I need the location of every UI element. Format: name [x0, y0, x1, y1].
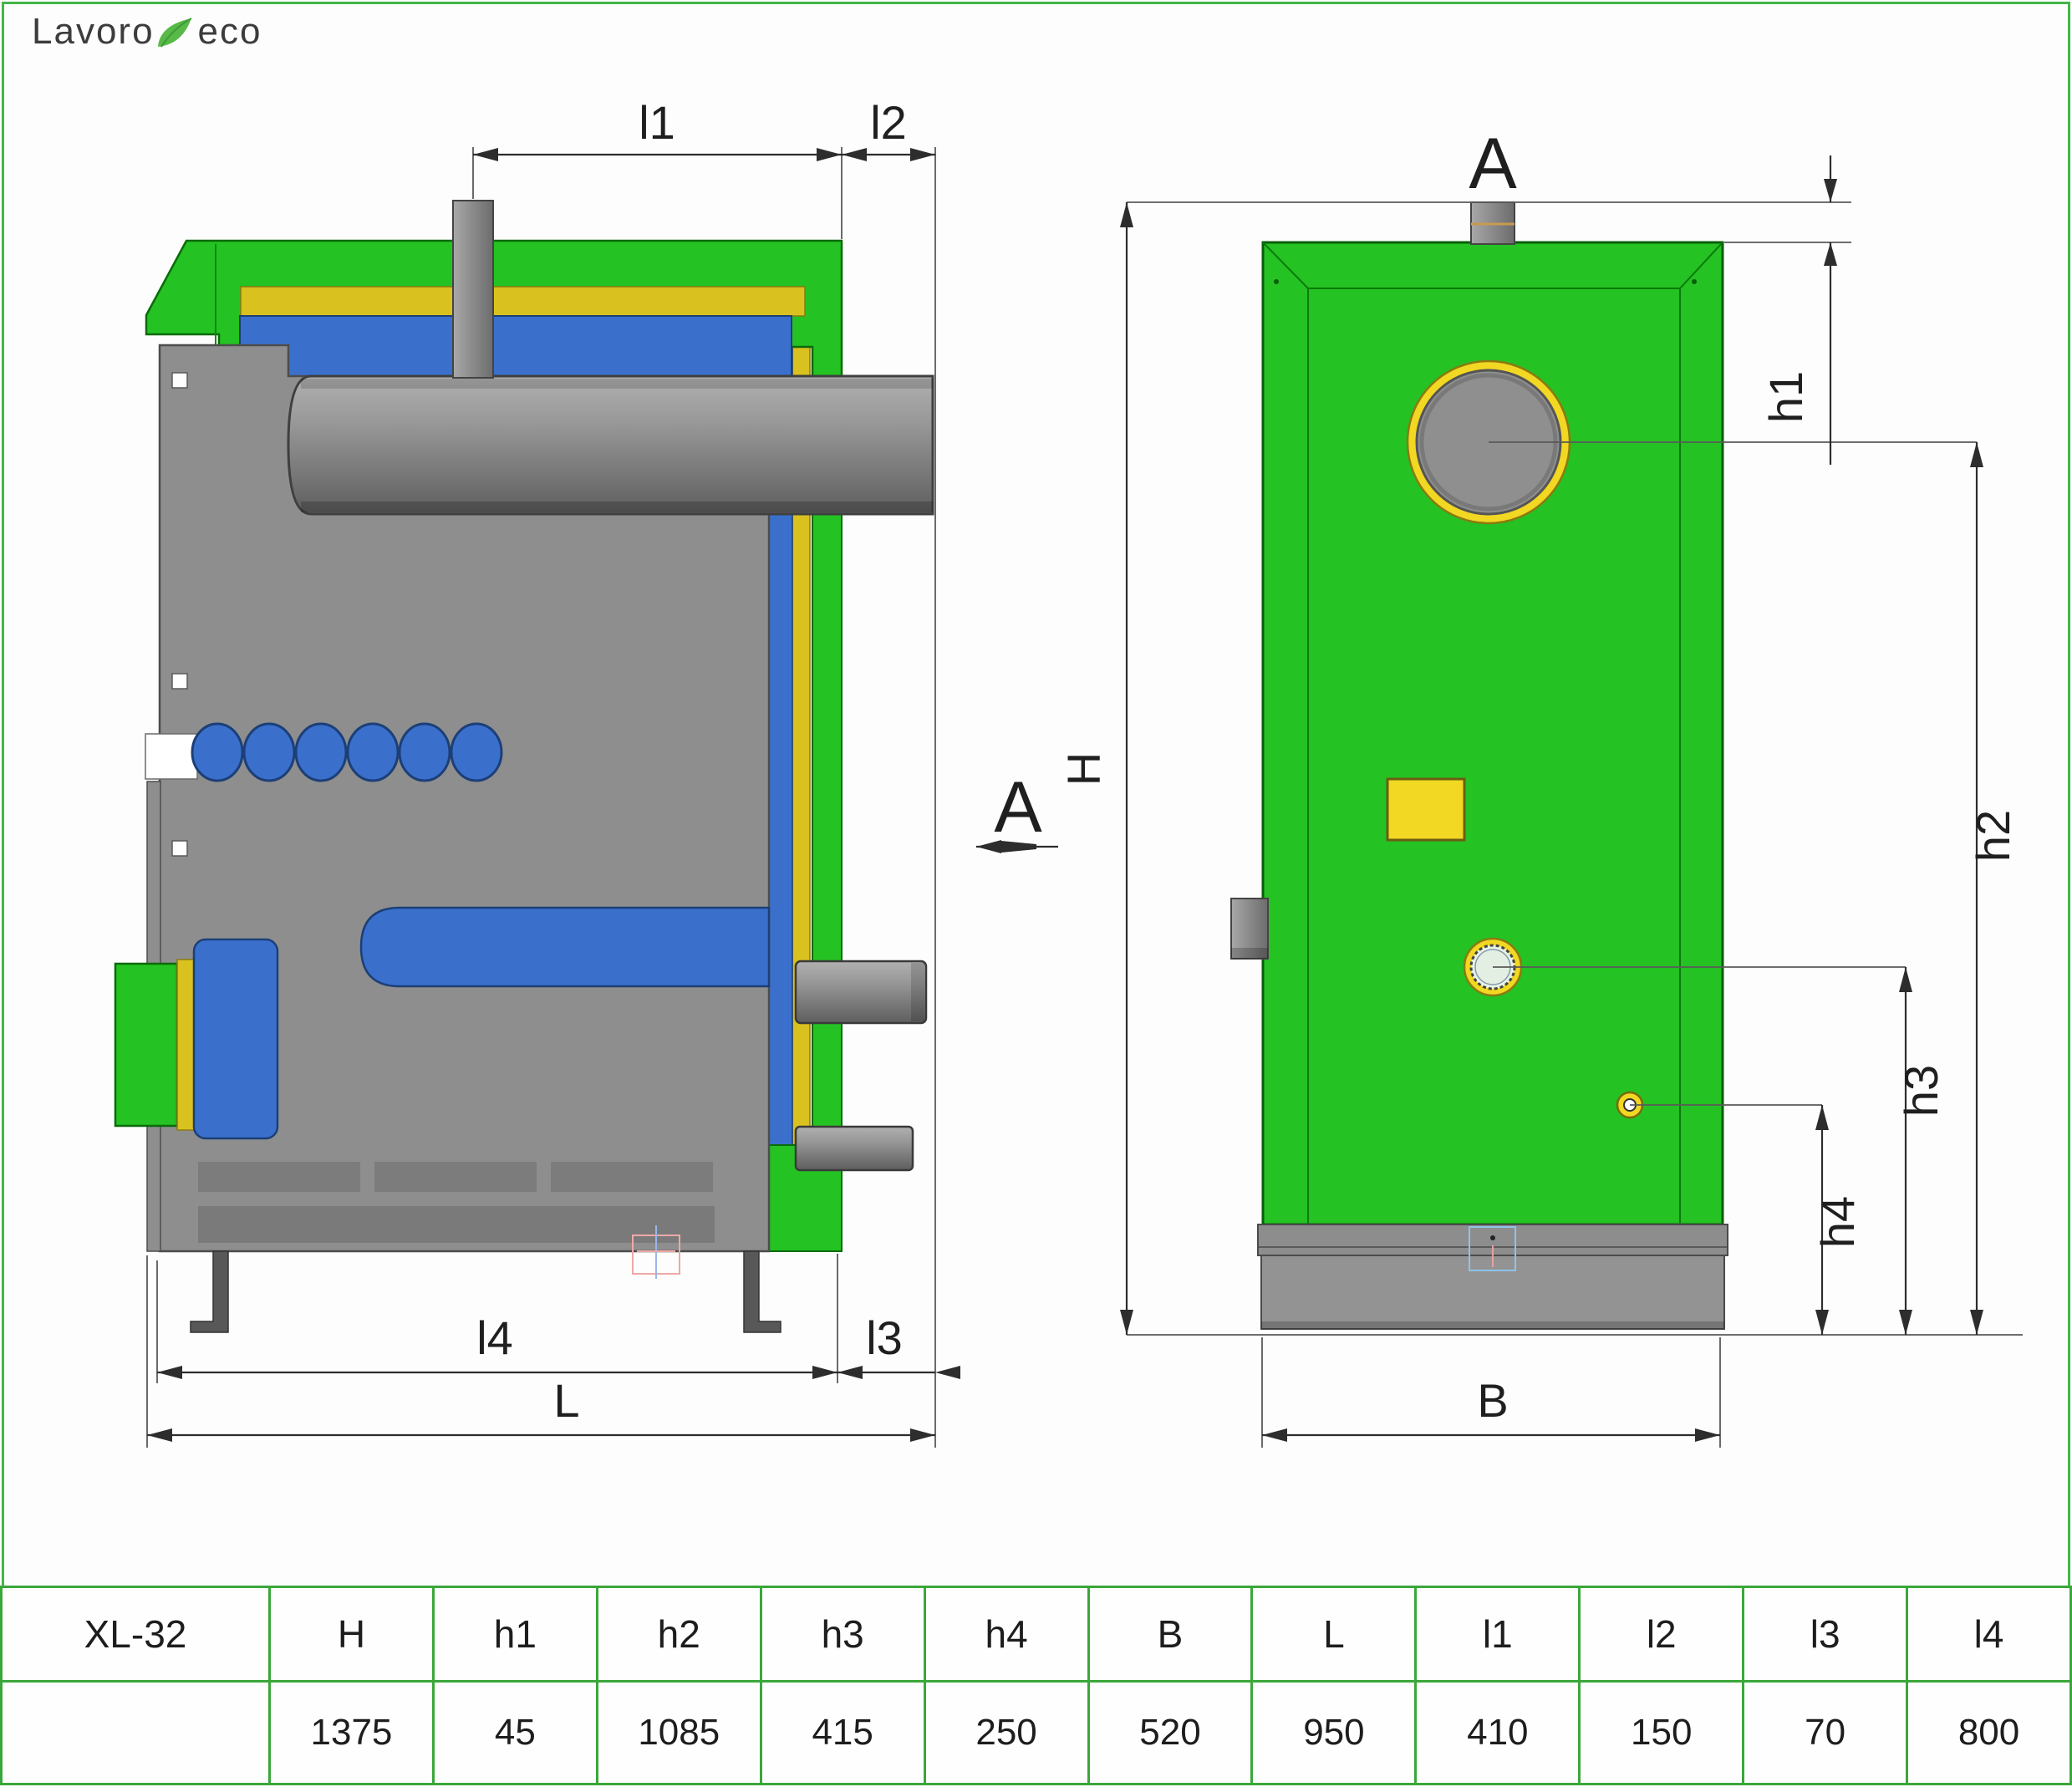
table-value-l4: 800: [1906, 1683, 2069, 1783]
dim-label-B: B: [1477, 1374, 1508, 1427]
stub-shade: [1231, 948, 1268, 959]
dim-label-H: H: [1057, 752, 1110, 786]
dim-label-h1: h1: [1759, 371, 1812, 423]
chimney-stub-side: [453, 201, 493, 378]
table-header-h2: h2: [596, 1588, 760, 1683]
spec-table: XL-32 H h1 h2 h3 h4 B L l1 l2 l3 l4 1375…: [0, 1586, 2072, 1785]
table-value-h2: 1085: [596, 1683, 760, 1783]
table-value-model: [3, 1683, 268, 1783]
grate-bar: [198, 1162, 360, 1192]
dim-label-L: L: [553, 1374, 579, 1427]
ash-tray: [198, 1206, 715, 1243]
grate-bar: [374, 1162, 537, 1192]
table-value-l3: 70: [1742, 1683, 1906, 1783]
front-plate-notch: [145, 734, 197, 779]
dim-label-h4: h4: [1811, 1196, 1864, 1248]
table-header-l2: l2: [1578, 1588, 1742, 1683]
dim-label-l3: l3: [866, 1311, 903, 1364]
table-header-l1: l1: [1414, 1588, 1578, 1683]
mount-hole: [172, 674, 187, 689]
weld-dot: [1274, 279, 1279, 284]
table-value-B: 520: [1087, 1683, 1251, 1783]
flue-cylinder-shade: [301, 501, 933, 512]
front-view-drawing: A H h1 h2 h3 h4 B: [1057, 124, 2023, 1448]
table-value-h1: 45: [432, 1683, 596, 1783]
dim-label-l2: l2: [870, 96, 907, 149]
water-outlet-pipe: [796, 961, 926, 1023]
technical-drawing: l1 l2 l4 l3 L A: [0, 0, 2072, 1787]
table-header-L: L: [1250, 1588, 1414, 1683]
table-header-l4: l4: [1906, 1588, 2069, 1683]
table-value-h3: 415: [760, 1683, 924, 1783]
water-baffle-tongue: [361, 908, 769, 986]
table-header-h3: h3: [760, 1588, 924, 1683]
weld-dot: [1692, 279, 1697, 284]
insulation-top-band: [241, 287, 805, 316]
dim-label-l1: l1: [639, 96, 675, 149]
dim-label-h2: h2: [1967, 810, 2019, 862]
boiler-datasheet-page: Lavoro eco: [0, 0, 2072, 1787]
section-marker-label: A: [994, 767, 1042, 848]
base-shade: [1261, 1321, 1724, 1329]
table-header-B: B: [1087, 1588, 1251, 1683]
loading-door: [115, 939, 277, 1138]
table-value-H: 1375: [268, 1683, 432, 1783]
table-value-l2: 150: [1578, 1683, 1742, 1783]
mount-hole: [172, 841, 187, 856]
table-header-H: H: [268, 1588, 432, 1683]
view-label-A: A: [1469, 124, 1517, 204]
dim-label-l4: l4: [476, 1311, 513, 1364]
flue-cylinder: [288, 376, 933, 514]
table-value-l1: 410: [1414, 1683, 1578, 1783]
table-value-L: 950: [1250, 1683, 1414, 1783]
left-leg: [191, 1251, 228, 1332]
grate-bar: [551, 1162, 713, 1192]
flue-cylinder-shade: [301, 379, 933, 389]
rating-plate: [1387, 779, 1464, 840]
water-return-pipe: [796, 1127, 913, 1170]
side-view-drawing: l1 l2 l4 l3 L A: [115, 96, 1058, 1448]
mount-hole: [172, 373, 187, 388]
right-leg: [744, 1251, 781, 1332]
table-header-model: XL-32: [3, 1588, 268, 1683]
table-value-h4: 250: [924, 1683, 1087, 1783]
dim-label-h3: h3: [1895, 1065, 1947, 1117]
table-header-l3: l3: [1742, 1588, 1906, 1683]
water-jacket-top-band: [240, 316, 792, 376]
table-header-h4: h4: [924, 1588, 1087, 1683]
table-header-h1: h1: [432, 1588, 596, 1683]
pipe-end-shade: [911, 963, 924, 1021]
